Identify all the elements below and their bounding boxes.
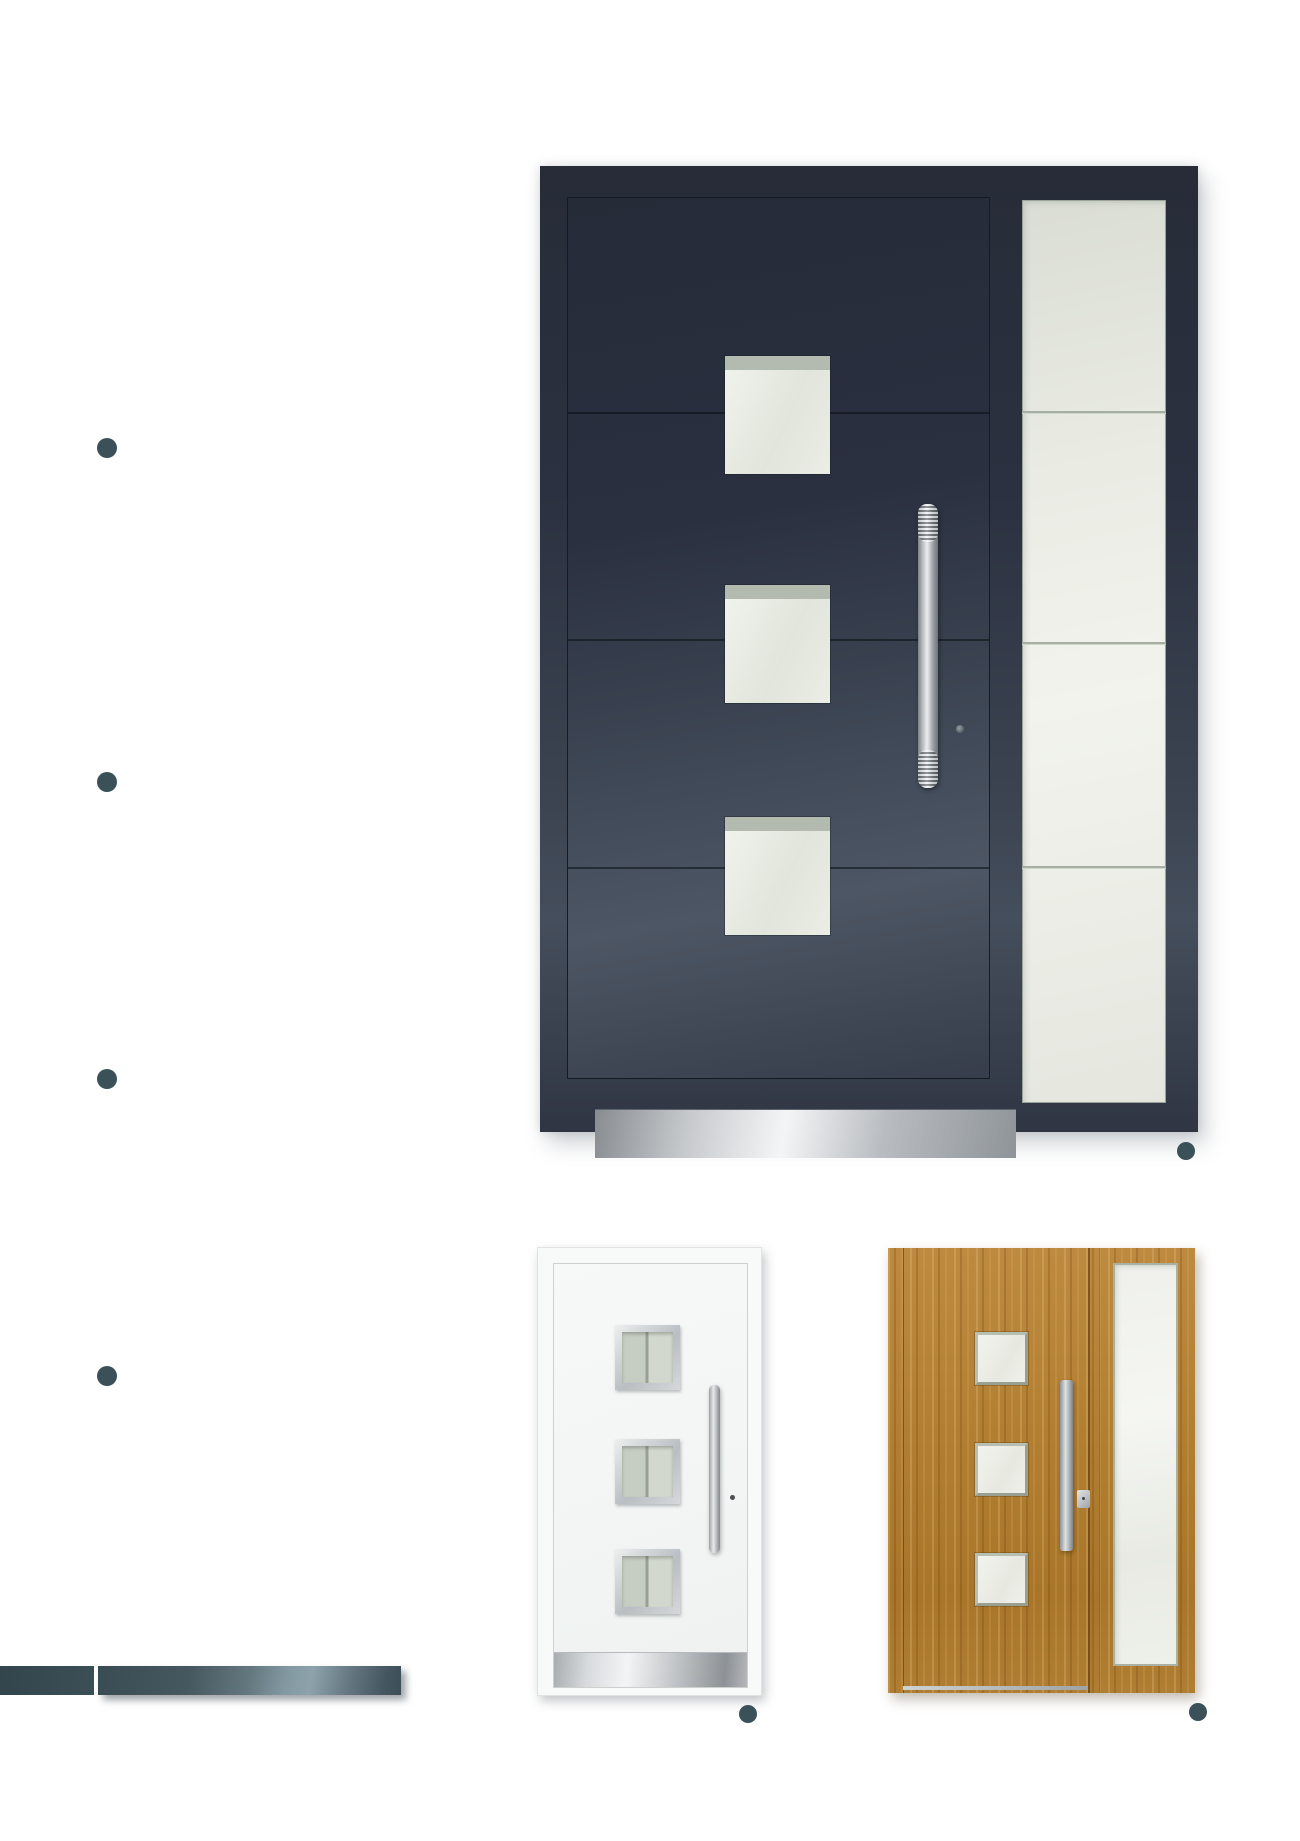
kick-plate [595,1109,1016,1158]
frame-seam [903,1248,904,1693]
door-glass-square [615,1439,680,1504]
caption-dot-gold-door [1189,1703,1207,1721]
catalog-page [0,0,1300,1841]
sidelight-glass [1022,200,1166,1103]
door-glass-square [725,817,830,935]
keyhole-icon [956,725,964,733]
sidelight-divider [1022,866,1166,869]
white-door-photo [537,1247,762,1696]
door-bar-handle [918,504,938,788]
door-glass-square [725,356,830,474]
sidelight-divider [1022,411,1166,414]
feature-bullet-icon-4 [97,1366,117,1386]
feature-bullet-icon-1 [97,438,117,458]
footer-accent-bar-left [0,1666,94,1695]
gold-door-photo [888,1248,1195,1693]
main-door-leaf [567,197,990,1079]
glass-pane [622,1332,673,1383]
threshold-bar [903,1686,1088,1690]
door-bar-handle [1060,1380,1073,1551]
sidelight-glass [1113,1263,1178,1666]
frame-seam [1099,1248,1100,1693]
sidelight-divider [1022,642,1166,645]
footer-accent-bar-right [98,1666,401,1695]
door-glass-square [615,1549,680,1614]
main-door-photo [540,166,1198,1132]
door-glass-square [725,585,830,703]
keyhole-icon [730,1495,735,1500]
glass-pane [622,1446,673,1497]
kick-plate [554,1652,747,1687]
caption-dot-main-door [1177,1142,1195,1160]
door-glass-square [615,1325,680,1390]
door-bar-handle [709,1385,720,1553]
feature-bullet-icon-3 [97,1069,117,1089]
lock-plate [1077,1490,1090,1508]
frame-seam [1088,1248,1090,1693]
feature-bullet-icon-2 [97,772,117,792]
door-glass-square [975,1332,1028,1385]
door-glass-square [975,1553,1028,1606]
glass-pane [622,1556,673,1607]
door-glass-square [975,1443,1028,1496]
white-door-leaf [553,1263,748,1688]
caption-dot-white-door [739,1705,757,1723]
